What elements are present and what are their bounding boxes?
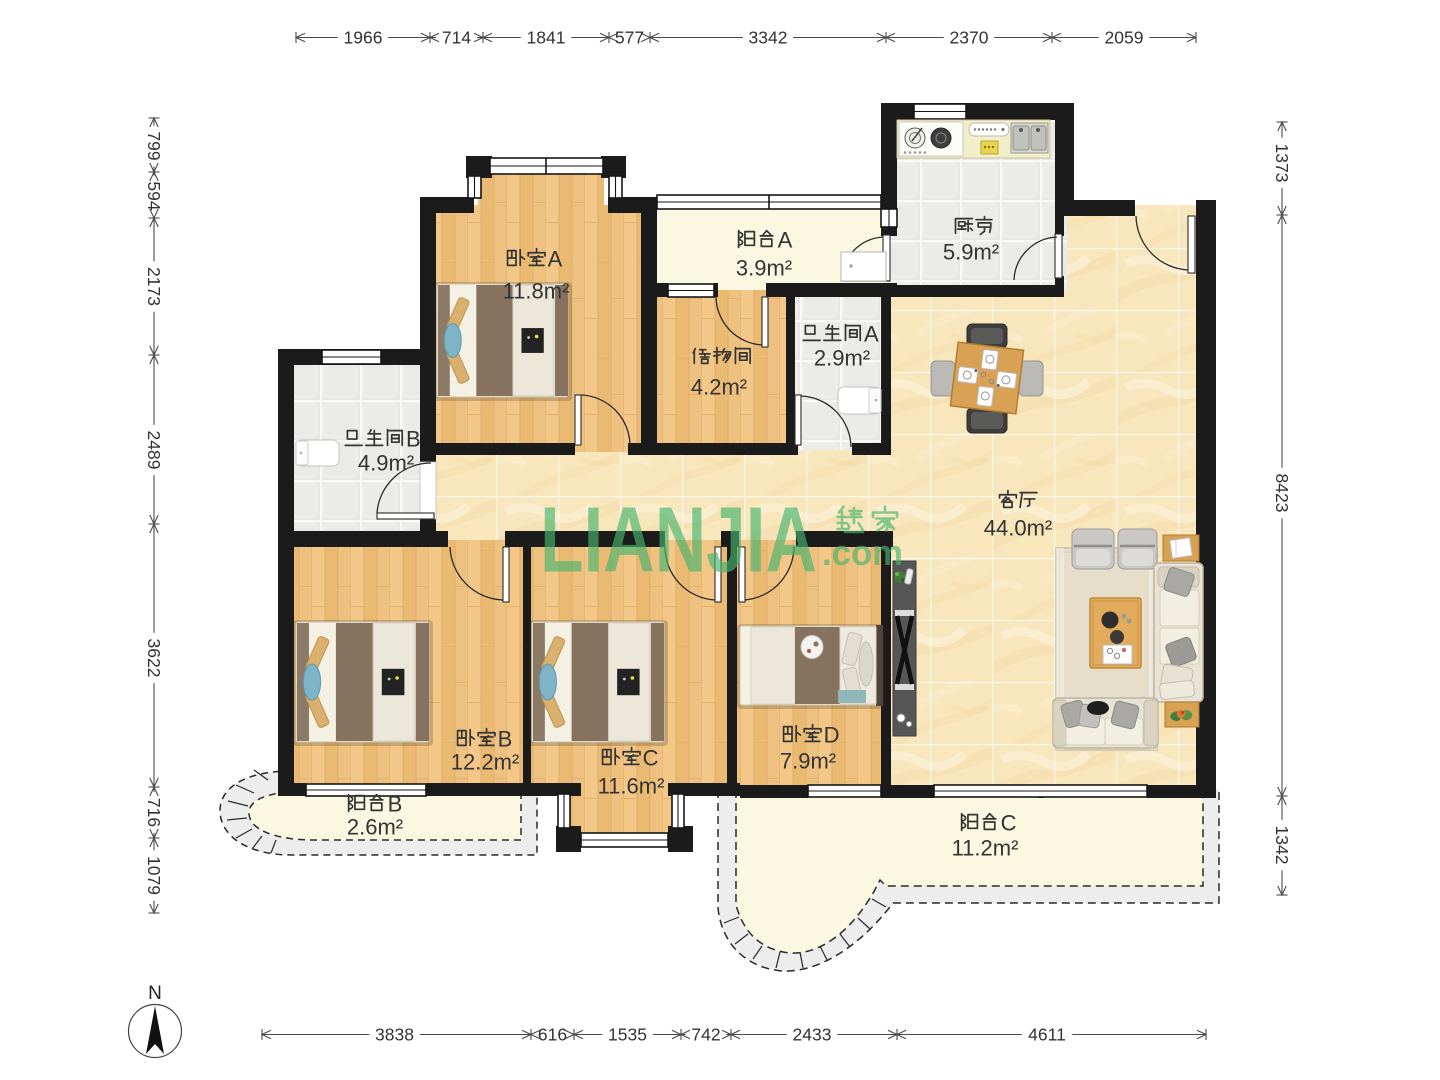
svg-text:D: D: [824, 723, 840, 748]
svg-text:3622: 3622: [144, 639, 164, 678]
svg-text:4.2m²: 4.2m²: [691, 375, 747, 400]
svg-text:11.6m²: 11.6m²: [598, 774, 665, 799]
svg-text:1966: 1966: [344, 28, 383, 48]
svg-text:3342: 3342: [749, 28, 788, 48]
svg-text:2059: 2059: [1105, 28, 1144, 48]
svg-text:799: 799: [144, 131, 164, 160]
svg-text:12.2m²: 12.2m²: [451, 750, 519, 775]
svg-text:C: C: [643, 746, 659, 771]
svg-text:714: 714: [442, 28, 471, 48]
svg-text:A: A: [778, 228, 793, 253]
svg-text:2370: 2370: [950, 28, 989, 48]
svg-text:2433: 2433: [793, 1025, 832, 1045]
svg-text:2.6m²: 2.6m²: [347, 815, 403, 840]
svg-text:1079: 1079: [144, 856, 164, 895]
svg-text:2173: 2173: [144, 267, 164, 306]
svg-text:.com: .com: [822, 532, 903, 573]
svg-text:C: C: [1001, 811, 1017, 836]
svg-text:577: 577: [615, 28, 644, 48]
svg-text:4611: 4611: [1028, 1025, 1066, 1045]
svg-text:B: B: [498, 727, 513, 752]
svg-text:B: B: [388, 792, 403, 817]
svg-text:1841: 1841: [527, 28, 566, 48]
svg-text:1535: 1535: [608, 1025, 647, 1045]
svg-text:1342: 1342: [1272, 826, 1292, 865]
svg-text:5.9m²: 5.9m²: [943, 240, 999, 265]
svg-text:3.9m²: 3.9m²: [736, 256, 792, 281]
svg-text:716: 716: [144, 798, 164, 827]
svg-text:2489: 2489: [144, 431, 164, 470]
svg-text:B: B: [406, 427, 421, 452]
svg-text:7.9m²: 7.9m²: [780, 749, 836, 774]
svg-text:2.9m²: 2.9m²: [814, 346, 870, 371]
svg-text:44.0m²: 44.0m²: [984, 516, 1052, 541]
svg-text:A: A: [548, 247, 563, 272]
svg-text:594: 594: [144, 181, 164, 210]
svg-text:8423: 8423: [1272, 474, 1292, 513]
svg-text:11.8m²: 11.8m²: [503, 279, 570, 304]
svg-text:11.2m²: 11.2m²: [952, 836, 1019, 861]
svg-text:1373: 1373: [1272, 144, 1292, 183]
svg-text:4.9m²: 4.9m²: [358, 451, 414, 476]
svg-text:616: 616: [538, 1025, 567, 1045]
svg-text:N: N: [148, 983, 162, 1004]
svg-text:742: 742: [691, 1025, 720, 1045]
svg-text:LIANJIA: LIANJIA: [540, 488, 817, 592]
svg-text:A: A: [864, 322, 879, 347]
svg-text:3838: 3838: [375, 1025, 414, 1045]
